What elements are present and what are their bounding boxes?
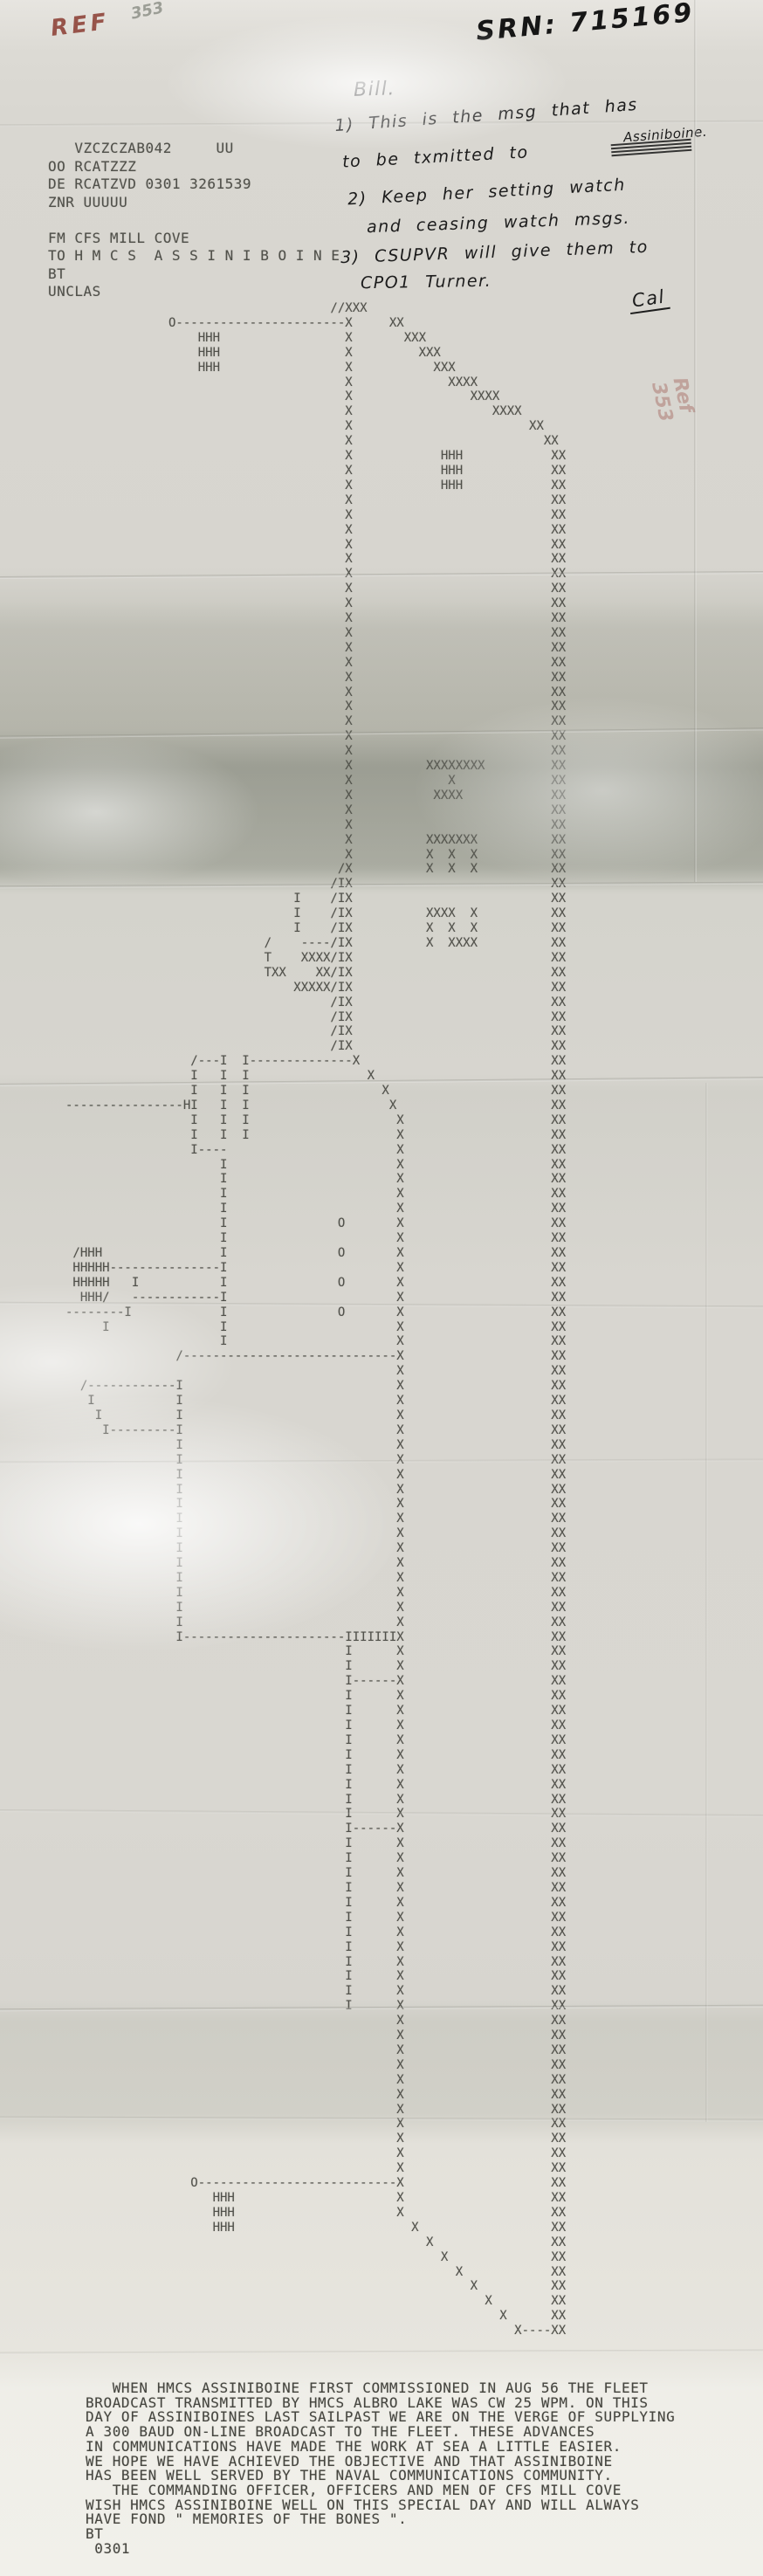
note-line-4: and ceasing watch msgs.: [367, 209, 631, 238]
message-body: WHEN HMCS ASSINIBOINE FIRST COMMISSIONED…: [86, 2381, 675, 2556]
message-header: VZCZCZAB042 UU OO RCATZZZ DE RCATZVD 030…: [48, 140, 340, 301]
srn-number: 715169: [568, 0, 696, 39]
side-ref-annotation: Ref 353: [647, 375, 705, 457]
signature-text: Cal: [628, 286, 670, 314]
ref-number-annotation: 353: [129, 0, 165, 24]
note-line-1: 1) This is the msg that has: [334, 95, 639, 135]
note-signature: Cal: [628, 286, 670, 312]
scanned-message-document: REF 353 SRN: 715169 Ref 353 Bill. 1) Thi…: [0, 0, 763, 2576]
note-line-5: 3) CSUPVR will give them to: [340, 238, 649, 267]
srn-annotation: SRN: 715169: [475, 0, 696, 47]
note-salutation: Bill.: [354, 78, 396, 101]
note-line-6: CPO1 Turner.: [361, 272, 492, 293]
note-line-3: 2) Keep her setting watch: [347, 176, 627, 210]
sleeve-edge-crease: [705, 1083, 708, 2122]
note-line-2: to be txmitted to: [342, 142, 530, 171]
srn-label: SRN:: [475, 10, 560, 47]
ascii-art-ship: //XXX O-----------------------X XX HHH X…: [65, 301, 566, 2338]
ref-annotation: REF: [49, 9, 111, 42]
fold-crease: [0, 2349, 763, 2354]
